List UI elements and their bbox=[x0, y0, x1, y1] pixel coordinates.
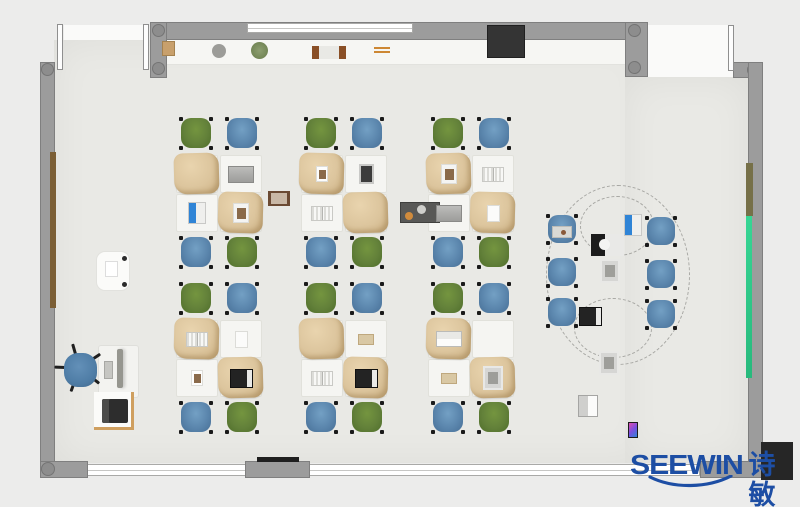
chair-leg bbox=[255, 265, 259, 269]
chair-leg bbox=[477, 146, 481, 150]
logo-swoosh-icon bbox=[646, 475, 734, 489]
chair-seat bbox=[548, 258, 576, 286]
chair-seat bbox=[479, 402, 509, 432]
printer bbox=[102, 399, 128, 423]
chair-blue bbox=[476, 116, 512, 151]
chair-leg bbox=[380, 311, 384, 315]
chair-leg bbox=[507, 236, 511, 240]
chair-leg bbox=[255, 146, 259, 150]
chair-seat bbox=[433, 283, 463, 313]
chair-green bbox=[303, 281, 339, 316]
meeting-device-phone-color bbox=[628, 422, 638, 438]
chair-leg bbox=[179, 146, 183, 150]
desk-item-laptop-blue bbox=[188, 202, 206, 224]
desk-item-book-open bbox=[186, 332, 208, 347]
student-desk bbox=[176, 320, 218, 358]
chair-blue bbox=[430, 400, 466, 435]
student-desk bbox=[472, 155, 514, 193]
student-desk bbox=[220, 155, 262, 193]
chair-leg bbox=[255, 430, 259, 434]
chair-leg bbox=[304, 401, 308, 405]
desk-item-laptop-gray bbox=[228, 166, 254, 183]
student-desk bbox=[301, 194, 343, 232]
chair-leg bbox=[179, 265, 183, 269]
chair-leg bbox=[673, 259, 677, 263]
desk-item-tablet-sketch bbox=[483, 366, 503, 390]
chair-leg bbox=[334, 430, 338, 434]
chair-leg bbox=[546, 257, 550, 261]
chair-seat bbox=[181, 118, 211, 148]
chair-leg bbox=[546, 324, 550, 328]
chair-leg bbox=[304, 265, 308, 269]
teacher-monitor bbox=[117, 349, 123, 388]
chair-leg bbox=[334, 117, 338, 121]
student-desk bbox=[220, 359, 262, 397]
shelf-item-machine bbox=[400, 202, 440, 223]
chair-seat bbox=[227, 237, 257, 267]
chair-leg bbox=[431, 117, 435, 121]
chair-leg bbox=[350, 282, 354, 286]
chair-leg bbox=[477, 430, 481, 434]
student-desk bbox=[472, 194, 514, 232]
chair-seat bbox=[181, 283, 211, 313]
chair-green bbox=[476, 400, 512, 435]
chair-leg bbox=[209, 430, 213, 434]
chair-leg bbox=[350, 401, 354, 405]
chair-seat bbox=[548, 298, 576, 326]
student-desk bbox=[345, 155, 387, 193]
chair-blue bbox=[545, 256, 579, 289]
chair-seat bbox=[352, 402, 382, 432]
student-desk bbox=[301, 359, 343, 397]
chair-seat bbox=[433, 237, 463, 267]
chair-leg bbox=[461, 401, 465, 405]
chair-leg bbox=[574, 284, 578, 288]
student-desk bbox=[345, 194, 387, 232]
chair-leg bbox=[461, 117, 465, 121]
chair-leg bbox=[380, 401, 384, 405]
brand-logo: SEEWIN 诗敏 bbox=[630, 450, 800, 494]
chair-blue bbox=[178, 235, 214, 270]
chair-blue bbox=[224, 116, 260, 151]
student-desk bbox=[472, 359, 514, 397]
chair-seat bbox=[433, 402, 463, 432]
chair-leg bbox=[304, 282, 308, 286]
chair-leg bbox=[225, 236, 229, 240]
chair-green bbox=[303, 116, 339, 151]
chair-green bbox=[224, 400, 260, 435]
desk-item-photo bbox=[316, 166, 328, 182]
chair-leg bbox=[574, 297, 578, 301]
chair-seat bbox=[306, 118, 336, 148]
chair-leg bbox=[507, 401, 511, 405]
teacher-office-chair bbox=[61, 350, 100, 394]
chair-leg bbox=[380, 236, 384, 240]
student-desk bbox=[176, 155, 218, 193]
shelf-item-books bbox=[312, 46, 346, 59]
chair-green bbox=[178, 116, 214, 151]
chair-leg bbox=[304, 146, 308, 150]
chair-leg bbox=[304, 311, 308, 315]
shelf-item-frame bbox=[268, 191, 290, 206]
chair-leg bbox=[546, 214, 550, 218]
chair-leg bbox=[304, 430, 308, 434]
meeting-device-tablet-sketch bbox=[599, 351, 619, 375]
chair-leg bbox=[350, 265, 354, 269]
chair-leg bbox=[380, 430, 384, 434]
chair-seat bbox=[647, 260, 675, 288]
chair-leg bbox=[461, 430, 465, 434]
chair-leg bbox=[255, 311, 259, 315]
teacher-side-table bbox=[96, 251, 130, 291]
shelf-item-plant bbox=[251, 42, 268, 59]
student-desk bbox=[345, 320, 387, 358]
chair-leg bbox=[179, 282, 183, 286]
chair-leg bbox=[673, 216, 677, 220]
chair-seat bbox=[181, 402, 211, 432]
desk-cluster bbox=[176, 281, 264, 435]
desk-item-laptop-gray bbox=[436, 205, 462, 222]
chair-seat bbox=[479, 283, 509, 313]
chair-leg bbox=[209, 117, 213, 121]
chair-leg bbox=[334, 236, 338, 240]
chair-leg bbox=[431, 236, 435, 240]
chair-green bbox=[430, 281, 466, 316]
desk-cover bbox=[173, 152, 219, 194]
chair-leg bbox=[477, 401, 481, 405]
chair-leg bbox=[334, 146, 338, 150]
chair-green bbox=[349, 400, 385, 435]
chair-leg bbox=[673, 299, 677, 303]
chair-leg bbox=[380, 265, 384, 269]
desk-item-paper bbox=[487, 205, 500, 222]
chair-leg bbox=[574, 241, 578, 245]
shelf-item-basket bbox=[162, 41, 175, 56]
chair-leg bbox=[507, 282, 511, 286]
student-desk bbox=[176, 194, 218, 232]
chair-leg bbox=[507, 146, 511, 150]
chair-leg bbox=[574, 324, 578, 328]
chair-blue bbox=[644, 298, 678, 331]
chair-blue bbox=[476, 281, 512, 316]
office-chair-seat bbox=[64, 353, 97, 387]
student-desk bbox=[472, 320, 514, 358]
chair-leg bbox=[477, 265, 481, 269]
meeting-device-laptop-open bbox=[578, 395, 598, 417]
chair-blue bbox=[349, 116, 385, 151]
chair-seat bbox=[306, 237, 336, 267]
meeting-device-laptop-blue bbox=[624, 214, 642, 236]
chair-leg bbox=[507, 265, 511, 269]
chair-leg bbox=[574, 257, 578, 261]
chair-leg bbox=[334, 282, 338, 286]
chair-seat bbox=[227, 118, 257, 148]
chair-seat bbox=[352, 237, 382, 267]
desk-cluster bbox=[428, 281, 516, 435]
desk-item-book-open bbox=[311, 206, 333, 221]
chair-leg bbox=[255, 117, 259, 121]
desk-item-paper bbox=[235, 331, 248, 348]
chair-leg bbox=[546, 297, 550, 301]
student-desk bbox=[428, 155, 470, 193]
chair-leg bbox=[334, 265, 338, 269]
chair-leg bbox=[507, 311, 511, 315]
brand-logo-cn-text: 诗敏 bbox=[748, 450, 800, 507]
chair-seat bbox=[181, 237, 211, 267]
chair-leg bbox=[209, 401, 213, 405]
chair-leg bbox=[431, 430, 435, 434]
desk-item-laptop-dark bbox=[355, 369, 378, 388]
chair-leg bbox=[546, 241, 550, 245]
chair-leg bbox=[507, 430, 511, 434]
chair-leg bbox=[645, 216, 649, 220]
chair-blue bbox=[644, 258, 678, 291]
chair-leg bbox=[431, 265, 435, 269]
chair-blue bbox=[178, 400, 214, 435]
chair-leg bbox=[225, 146, 229, 150]
meeting-device-laptop-dark bbox=[579, 307, 602, 326]
chair-leg bbox=[179, 117, 183, 121]
chair-leg bbox=[179, 430, 183, 434]
desk-cluster bbox=[301, 281, 389, 435]
chair-leg bbox=[209, 282, 213, 286]
chair-leg bbox=[380, 146, 384, 150]
desk-item-laptop-dark bbox=[230, 369, 253, 388]
shelf-item-plate bbox=[212, 44, 226, 58]
chair-seat bbox=[479, 237, 509, 267]
desk-item-book-open bbox=[482, 167, 504, 182]
chair-blue bbox=[349, 281, 385, 316]
chair-seat bbox=[479, 118, 509, 148]
chair-blue bbox=[430, 235, 466, 270]
chair-leg bbox=[225, 117, 229, 121]
chair-leg bbox=[334, 401, 338, 405]
chair-leg bbox=[673, 286, 677, 290]
meeting-device-tablet-sketch bbox=[600, 259, 620, 283]
chair-leg bbox=[477, 282, 481, 286]
chair-leg bbox=[645, 326, 649, 330]
chair-leg bbox=[380, 282, 384, 286]
chair-leg bbox=[225, 282, 229, 286]
chair-leg bbox=[209, 236, 213, 240]
desk-item-book-open bbox=[311, 371, 333, 386]
chair-leg bbox=[645, 286, 649, 290]
chair-leg bbox=[225, 311, 229, 315]
chair-leg bbox=[225, 401, 229, 405]
shelf-item-sticks bbox=[374, 47, 390, 53]
chair-leg bbox=[645, 299, 649, 303]
desk-item-tablet-gray bbox=[359, 164, 374, 184]
chair-leg bbox=[431, 282, 435, 286]
desk-cluster bbox=[301, 116, 389, 270]
chair-seat bbox=[647, 300, 675, 328]
chair-green bbox=[430, 116, 466, 151]
desk-item-book-photo bbox=[233, 203, 249, 223]
chair-leg bbox=[225, 430, 229, 434]
chair-blue bbox=[303, 400, 339, 435]
teacher-keyboard bbox=[104, 361, 113, 379]
student-desk bbox=[220, 194, 262, 232]
chair-leg bbox=[209, 311, 213, 315]
chair-seat bbox=[306, 402, 336, 432]
student-desk bbox=[428, 359, 470, 397]
desk-cover bbox=[298, 317, 344, 359]
desk-item-laptop-white bbox=[436, 331, 462, 347]
chair-leg bbox=[461, 282, 465, 286]
chair-seat bbox=[433, 118, 463, 148]
desk-item-book-photo bbox=[441, 164, 457, 184]
student-desk bbox=[345, 359, 387, 397]
chair-leg bbox=[461, 311, 465, 315]
chair-blue bbox=[224, 281, 260, 316]
chair-leg bbox=[209, 146, 213, 150]
chair-seat bbox=[352, 283, 382, 313]
chair-leg bbox=[673, 243, 677, 247]
student-desk bbox=[176, 359, 218, 397]
chair-leg bbox=[461, 236, 465, 240]
chair-leg bbox=[350, 236, 354, 240]
shelf-item-box bbox=[552, 226, 572, 238]
chair-leg bbox=[477, 117, 481, 121]
chair-green bbox=[178, 281, 214, 316]
chair-leg bbox=[546, 284, 550, 288]
chair-leg bbox=[350, 430, 354, 434]
desk-cover bbox=[342, 191, 388, 233]
chair-leg bbox=[645, 243, 649, 247]
chair-leg bbox=[477, 311, 481, 315]
chair-leg bbox=[334, 311, 338, 315]
furniture-layer bbox=[0, 0, 800, 507]
chair-seat bbox=[647, 217, 675, 245]
chair-seat bbox=[227, 402, 257, 432]
chair-leg bbox=[304, 117, 308, 121]
chair-green bbox=[349, 235, 385, 270]
chair-seat bbox=[227, 283, 257, 313]
chair-blue bbox=[644, 215, 678, 248]
desk-item-book-tan bbox=[441, 373, 457, 384]
chair-leg bbox=[431, 401, 435, 405]
chair-blue bbox=[303, 235, 339, 270]
chair-leg bbox=[255, 282, 259, 286]
chair-leg bbox=[209, 265, 213, 269]
chair-leg bbox=[179, 236, 183, 240]
chair-leg bbox=[461, 265, 465, 269]
chair-green bbox=[224, 235, 260, 270]
chair-leg bbox=[225, 265, 229, 269]
chair-leg bbox=[431, 311, 435, 315]
chair-leg bbox=[304, 236, 308, 240]
chair-leg bbox=[179, 401, 183, 405]
desk-item-photo bbox=[191, 370, 203, 386]
chair-leg bbox=[255, 236, 259, 240]
chair-leg bbox=[431, 146, 435, 150]
chair-leg bbox=[645, 259, 649, 263]
chair-leg bbox=[350, 311, 354, 315]
chair-seat bbox=[306, 283, 336, 313]
desk-item-book-tan bbox=[358, 334, 374, 345]
chair-leg bbox=[350, 146, 354, 150]
chair-leg bbox=[507, 117, 511, 121]
chair-leg bbox=[255, 401, 259, 405]
chair-leg bbox=[179, 311, 183, 315]
student-desk bbox=[220, 320, 262, 358]
desk-cluster bbox=[428, 116, 516, 270]
floor-plan-canvas: SEEWIN 诗敏 bbox=[0, 0, 800, 507]
student-desk bbox=[301, 155, 343, 193]
chair-leg bbox=[574, 214, 578, 218]
student-desk bbox=[428, 320, 470, 358]
chair-green bbox=[476, 235, 512, 270]
chair-leg bbox=[380, 117, 384, 121]
shelf-item-device-bw bbox=[591, 234, 624, 256]
chair-leg bbox=[461, 146, 465, 150]
chair-blue bbox=[545, 296, 579, 329]
chair-leg bbox=[350, 117, 354, 121]
student-desk bbox=[301, 320, 343, 358]
desk-cluster bbox=[176, 116, 264, 270]
chair-seat bbox=[352, 118, 382, 148]
chair-leg bbox=[673, 326, 677, 330]
chair-leg bbox=[477, 236, 481, 240]
